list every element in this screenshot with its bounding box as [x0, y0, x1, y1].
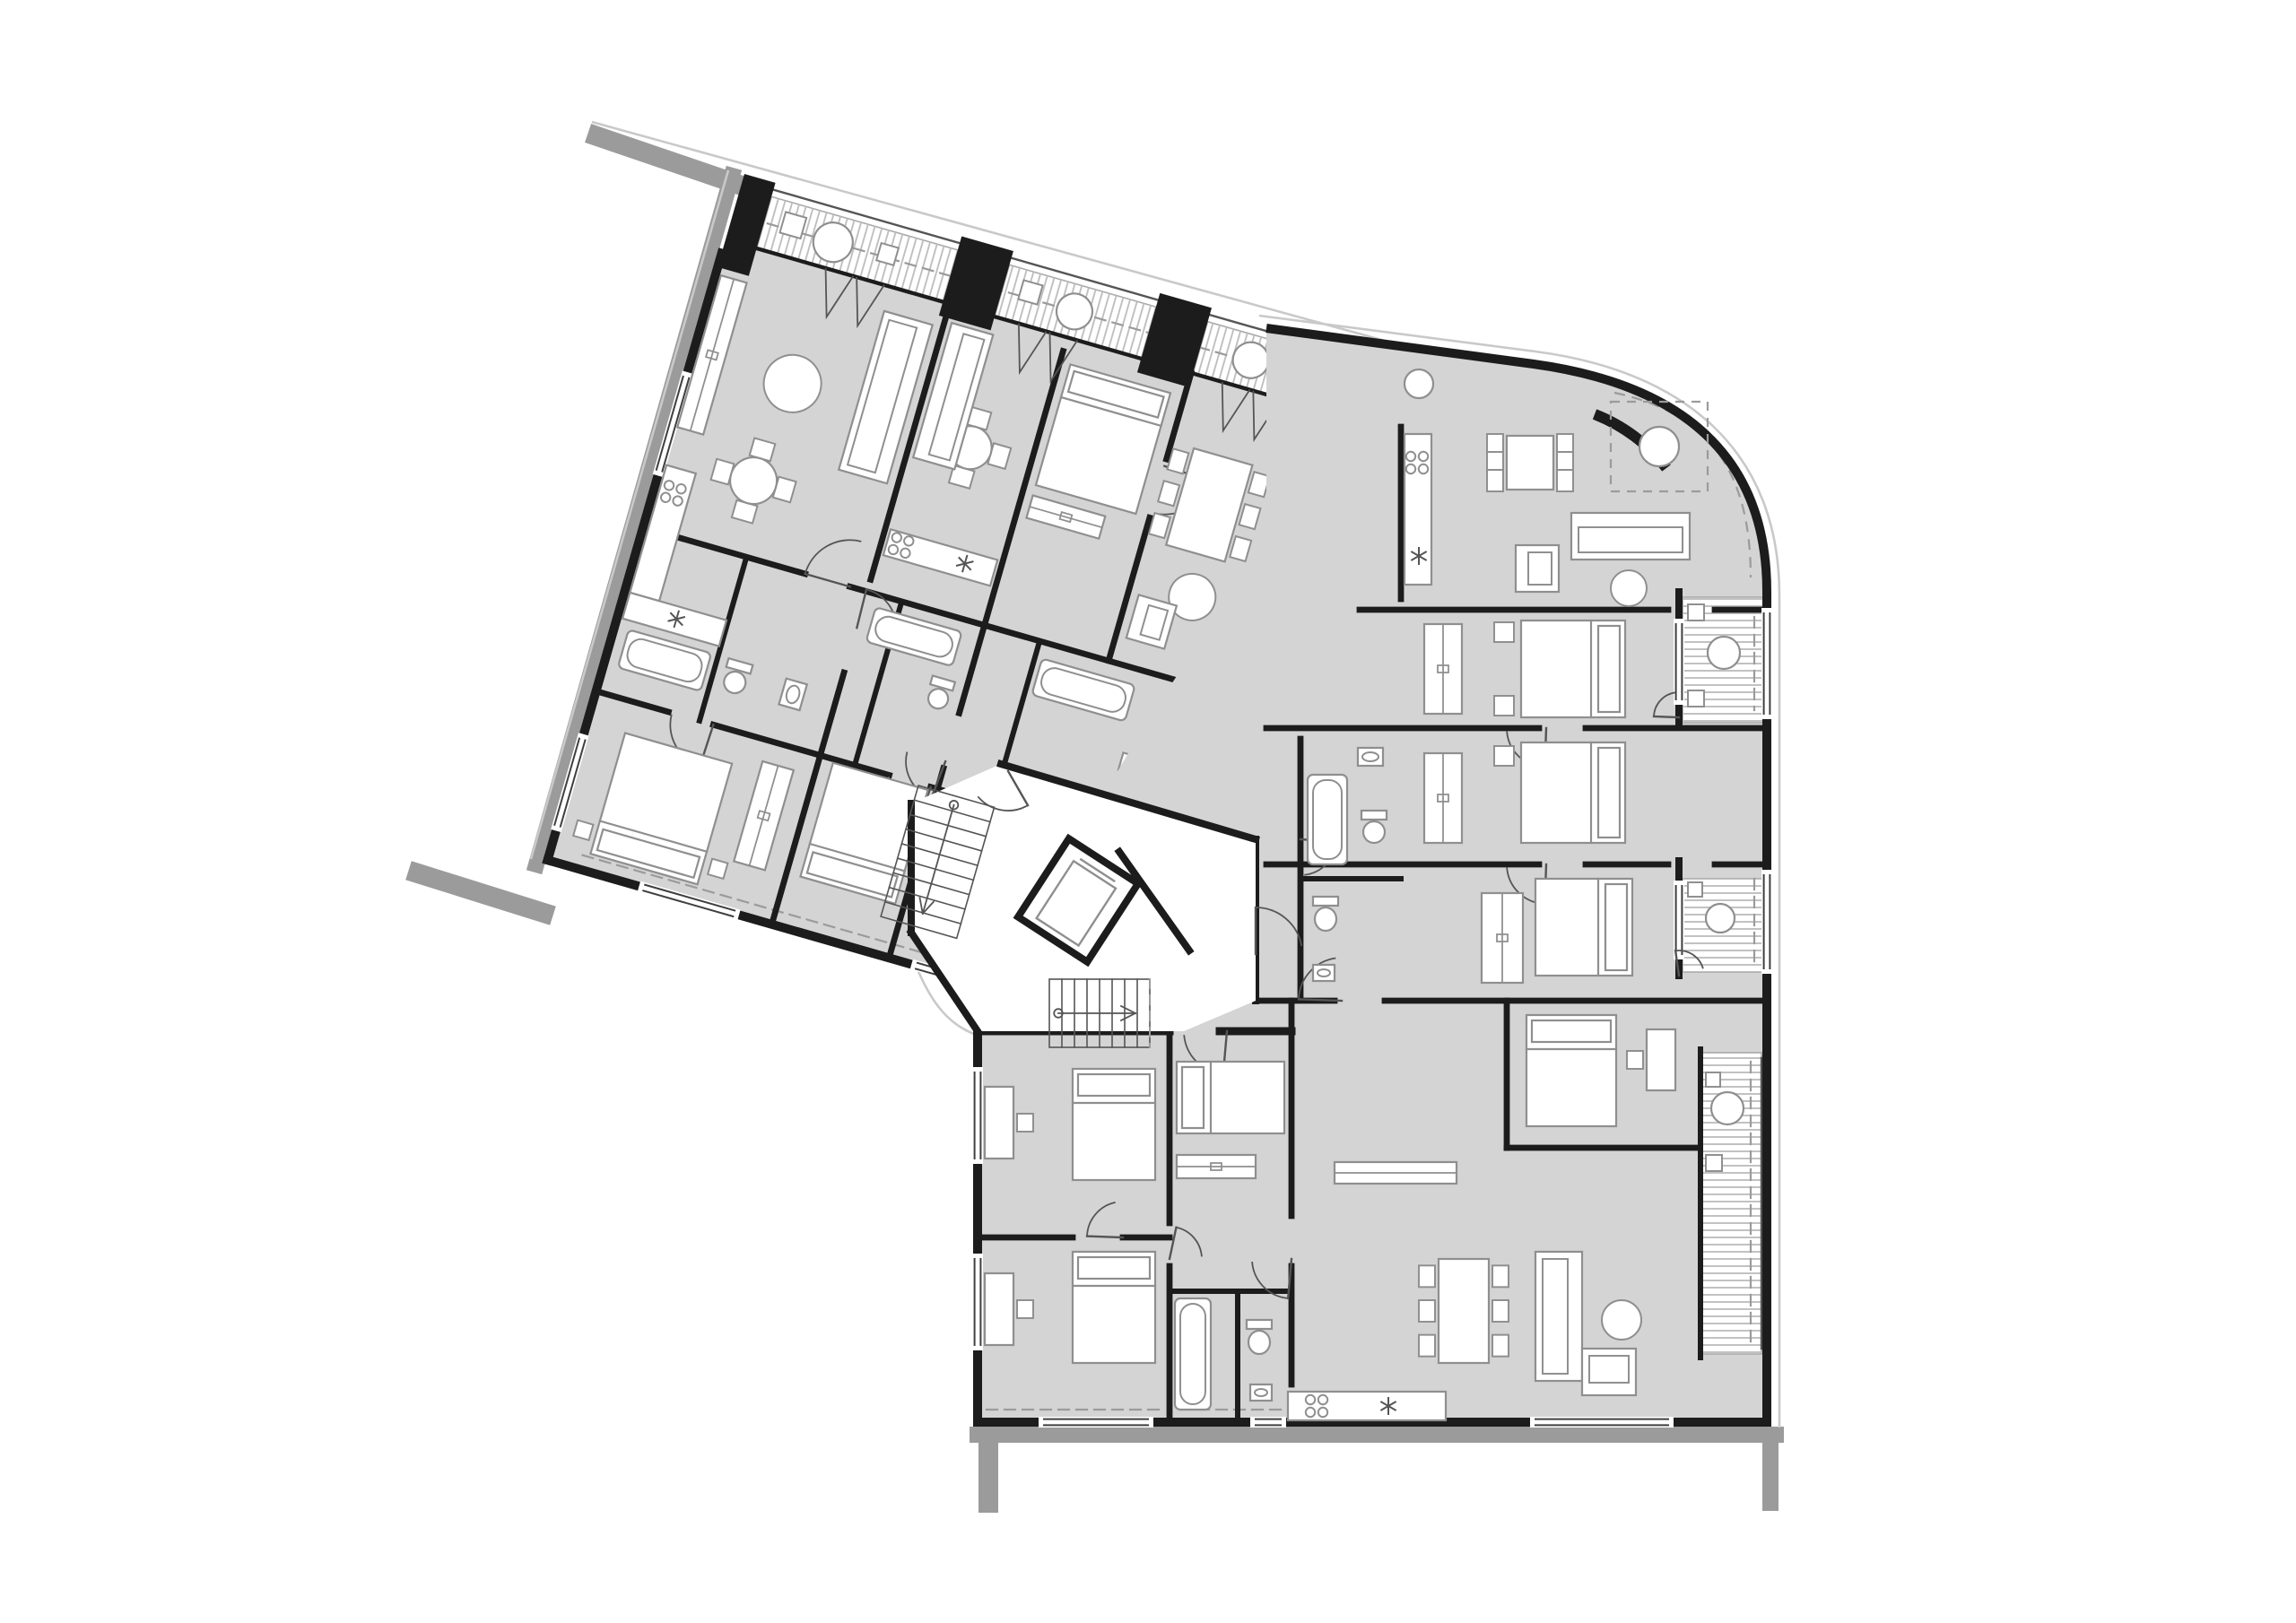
toilet-bowl [1363, 821, 1385, 843]
door-leaf [1087, 1237, 1123, 1237]
desk-chair [1627, 1051, 1643, 1069]
desk [985, 1273, 1013, 1345]
chair [1557, 470, 1573, 491]
chair [1419, 1300, 1435, 1322]
planter-pot [1018, 280, 1042, 304]
dining-table [1439, 1259, 1489, 1363]
toilet-tank [1313, 897, 1338, 906]
nightstand [1494, 696, 1514, 716]
nightstand [573, 820, 593, 840]
round-table [1708, 637, 1740, 669]
round-table [1639, 427, 1679, 466]
nightstand [1494, 746, 1514, 766]
desk [985, 1087, 1013, 1159]
bed [1521, 621, 1625, 717]
chair [1487, 470, 1503, 491]
planter-pot [779, 212, 806, 239]
nightstand [708, 859, 727, 879]
toilet-bowl [1248, 1331, 1270, 1354]
bed [1526, 1015, 1616, 1126]
floor-plan-canvas [0, 0, 2296, 1623]
bed [1073, 1069, 1155, 1180]
dining-table [1507, 436, 1553, 490]
bed [1535, 879, 1632, 976]
planter-pot [1688, 604, 1704, 621]
toilet-bowl [1315, 907, 1336, 931]
bed [1177, 1062, 1284, 1133]
sink [1250, 1384, 1272, 1401]
door-leaf [1299, 999, 1342, 1001]
toilet-tank [1361, 811, 1387, 820]
round-table [1706, 904, 1735, 933]
round-rug [1602, 1300, 1641, 1340]
round-table [1711, 1092, 1744, 1124]
planter-pot [1688, 690, 1704, 707]
door-leaf [1654, 716, 1679, 717]
floor-plan [0, 0, 2296, 1623]
nightstand [1494, 622, 1514, 642]
toilet-tank [1247, 1320, 1272, 1329]
chair [1492, 1265, 1509, 1287]
desk-chair [1017, 1300, 1033, 1318]
bed [1521, 742, 1625, 843]
chair [1492, 1335, 1509, 1357]
sink [1313, 965, 1335, 981]
planter-pot [1706, 1072, 1720, 1087]
planter-pot [1688, 882, 1702, 897]
chair [1419, 1265, 1435, 1287]
planter-pot [876, 243, 899, 265]
round-rug [1611, 570, 1647, 606]
planter-pot [1706, 1155, 1722, 1171]
plant [1405, 369, 1433, 398]
floor-plan-svg [0, 0, 2296, 1623]
chair [1419, 1335, 1435, 1357]
bed [1073, 1252, 1155, 1363]
chair [1492, 1300, 1509, 1322]
desk-chair [1017, 1114, 1033, 1132]
desk [1647, 1029, 1675, 1090]
